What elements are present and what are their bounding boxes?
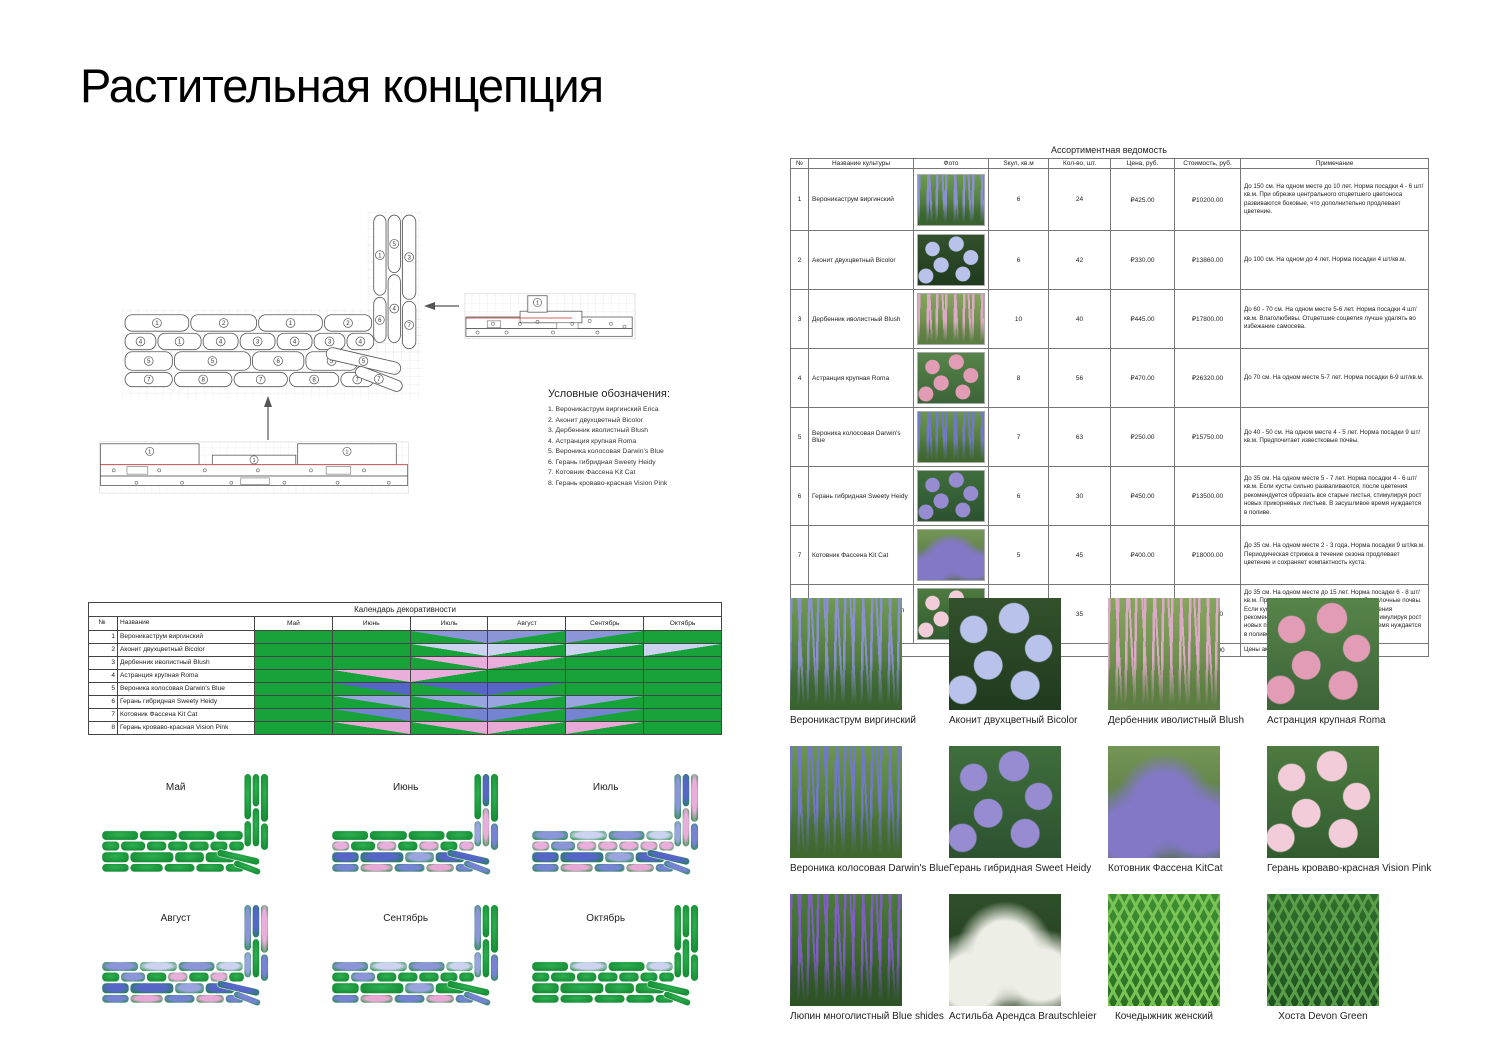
calendar-cell (487, 644, 565, 656)
assortment-cell-name: Котовник Фассена Kit Cat (809, 526, 914, 585)
svg-text:2: 2 (222, 320, 226, 327)
assortment-row: 1Вероникаструм виргинский624₽425.00₽1020… (791, 169, 1429, 231)
calendar-cell (410, 722, 488, 734)
calendar-row: 1Вероникаструм виргинский (89, 631, 721, 644)
svg-text:3: 3 (407, 254, 411, 261)
gallery-item: Герань кроваво-красная Vision Pink (1267, 746, 1379, 874)
legend-item: 1. Вероникаструм виргинский Erica (548, 405, 723, 416)
svg-text:5: 5 (393, 241, 397, 248)
arrow-up-icon (262, 396, 274, 440)
calendar-row-number: 4 (89, 670, 117, 682)
svg-text:1: 1 (289, 320, 293, 327)
calendar-cell (487, 709, 565, 721)
svg-text:4: 4 (393, 306, 397, 313)
assortment-cell-price: ₽400.00 (1111, 526, 1175, 585)
legend-item: 4. Астранция крупная Roma (548, 437, 723, 448)
calendar-cell (565, 670, 643, 682)
svg-text:1: 1 (345, 449, 348, 455)
assortment-section: Ассортиментная ведомость №Название культ… (790, 145, 1428, 657)
assortment-row: 3Дербенник иволистный Blush1040₽445.00₽1… (791, 290, 1429, 349)
calendar-cell (487, 670, 565, 682)
assortment-cell-num: 4 (791, 349, 809, 408)
assortment-column-header: Название культуры (809, 159, 914, 169)
legend-item: 6. Герань гибридная Sweety Heidy (548, 458, 723, 469)
calendar-cell (643, 709, 721, 721)
assortment-column-header: № (791, 159, 809, 169)
calendar-column-header: № (89, 617, 117, 630)
legend-item: 5. Вероника колосовая Darwin's Blue (548, 447, 723, 458)
svg-text:1: 1 (536, 301, 539, 307)
assortment-cell-cost: ₽10200.00 (1175, 169, 1241, 231)
assortment-cell-num: 6 (791, 467, 809, 526)
photo-caption: Котовник Фассена KitCat (1108, 863, 1220, 874)
gallery-item: Кочедыжник женский (1108, 894, 1220, 1022)
assortment-cell-note: До 150 см. На одном месте до 10 лет. Нор… (1241, 169, 1429, 231)
photo-caption: Астильба Арендса Brautschleier (949, 1011, 1061, 1022)
assortment-cell-num: 7 (791, 526, 809, 585)
assortment-cell-photo (914, 467, 989, 526)
plant-photo (790, 746, 902, 858)
calendar-column-header: Июнь (332, 617, 410, 630)
assortment-cell-cost: ₽18000.00 (1175, 526, 1241, 585)
svg-text:8: 8 (201, 377, 205, 384)
calendar-cell (487, 657, 565, 669)
calendar-cell (487, 631, 565, 643)
plant-photo (949, 894, 1061, 1006)
planting-plan-drawing: 1212414343455657878715364757 (122, 212, 422, 399)
calendar-column-header: Октябрь (643, 617, 721, 630)
assortment-cell-area: 6 (989, 169, 1049, 231)
svg-text:5: 5 (147, 358, 151, 365)
calendar-row: 2Аконит двухцветный Bicolor (89, 644, 721, 657)
plant-photo (949, 598, 1061, 710)
svg-text:6: 6 (276, 358, 280, 365)
plant-photo (1108, 746, 1220, 858)
svg-text:7: 7 (377, 376, 381, 383)
svg-text:7: 7 (259, 377, 263, 384)
calendar-cell (332, 631, 410, 643)
assortment-header-row: №Название культурыФотоSкул, кв.мКол-во, … (791, 159, 1429, 169)
svg-text:1: 1 (148, 449, 151, 455)
svg-text:1: 1 (178, 339, 182, 346)
calendar-row-name: Дербенник иволистный Blush (117, 657, 254, 669)
calendar-row: 3Дербенник иволистный Blush (89, 657, 721, 670)
calendar-cell (332, 670, 410, 682)
gallery-item: Люпин многолистный Blue shides (790, 894, 902, 1022)
svg-text:1: 1 (378, 252, 382, 259)
calendar-column-header: Название (117, 617, 254, 630)
calendar-column-header: Сентябрь (565, 617, 643, 630)
assortment-cell-name: Аконит двухцветный Bicolor (809, 231, 914, 290)
month-planting-scheme (330, 772, 502, 879)
calendar-cell (254, 683, 332, 695)
calendar-cell (254, 644, 332, 656)
gallery-item: Хоста Devon Green (1267, 894, 1379, 1022)
calendar-row-number: 5 (89, 683, 117, 695)
calendar-cell (565, 683, 643, 695)
assortment-row: 2Аконит двухцветный Bicolor642₽330.00₽13… (791, 231, 1429, 290)
calendar-row: 4Астранция крупная Roma (89, 670, 721, 683)
assortment-row: 5Вероника колосовая Darwin's Blue763₽250… (791, 408, 1429, 467)
gallery-item: Вероникаструм виргинский (790, 598, 902, 726)
photo-caption: Люпин многолистный Blue shides (790, 1011, 902, 1022)
calendar-cell (565, 657, 643, 669)
calendar-row-name: Герань гибридная Sweety Heidy (117, 696, 254, 708)
plant-photo (1108, 598, 1220, 710)
calendar-row-number: 7 (89, 709, 117, 721)
assortment-cell-photo (914, 408, 989, 467)
decorative-calendar: Календарь декоративности №НазваниеМайИюн… (88, 602, 722, 735)
assortment-cell-qty: 45 (1049, 526, 1111, 585)
calendar-cell (410, 670, 488, 682)
plant-photo (1108, 894, 1220, 1006)
assortment-column-header: Кол-во, шт. (1049, 159, 1111, 169)
assortment-cell-qty: 42 (1049, 231, 1111, 290)
assortment-cell-area: 6 (989, 231, 1049, 290)
assortment-cell-photo (914, 231, 989, 290)
assortment-cell-name: Дербенник иволистный Blush (809, 290, 914, 349)
month-diagram-1: Май (100, 762, 272, 884)
gallery-item: Вероника колосовая Darwin's Blue (790, 746, 902, 874)
photo-caption: Герань гибридная Sweet Heidy (949, 863, 1061, 874)
assortment-cell-num: 2 (791, 231, 809, 290)
svg-text:7: 7 (407, 322, 411, 329)
calendar-cell (254, 657, 332, 669)
calendar-row-name: Герань кроваво-красная Vision Pink (117, 722, 254, 734)
calendar-cell (565, 722, 643, 734)
svg-text:7: 7 (147, 377, 151, 384)
assortment-table: №Название культурыФотоSкул, кв.мКол-во, … (790, 158, 1429, 657)
assortment-cell-cost: ₽26320.00 (1175, 349, 1241, 408)
photo-caption: Хоста Devon Green (1267, 1011, 1379, 1022)
assortment-cell-area: 7 (989, 408, 1049, 467)
calendar-cell (643, 644, 721, 656)
calendar-title: Календарь декоративности (89, 603, 721, 617)
plant-photo (1267, 746, 1379, 858)
svg-text:1: 1 (155, 320, 159, 327)
calendar-header-row: №НазваниеМайИюньИюльАвгустСентябрьОктябр… (89, 617, 721, 631)
calendar-cell (254, 696, 332, 708)
calendar-cell (565, 631, 643, 643)
assortment-cell-qty: 30 (1049, 467, 1111, 526)
calendar-row-number: 1 (89, 631, 117, 643)
assortment-cell-price: ₽250.00 (1111, 408, 1175, 467)
calendar-cell (487, 722, 565, 734)
calendar-cell (332, 683, 410, 695)
calendar-row: 6Герань гибридная Sweety Heidy (89, 696, 721, 709)
svg-text:4: 4 (139, 339, 143, 346)
assortment-cell-cost: ₽13860.00 (1175, 231, 1241, 290)
assortment-cell-photo (914, 169, 989, 231)
calendar-cell (254, 709, 332, 721)
calendar-cell (254, 631, 332, 643)
legend-item: 8. Герань кроваво-красная Vision Pink (548, 479, 723, 490)
assortment-cell-qty: 56 (1049, 349, 1111, 408)
assortment-cell-cost: ₽13500.00 (1175, 467, 1241, 526)
calendar-column-header: Август (487, 617, 565, 630)
svg-text:4: 4 (293, 339, 297, 346)
calendar-cell (410, 696, 488, 708)
assortment-cell-qty: 40 (1049, 290, 1111, 349)
month-diagram-5: Сентябрь (330, 893, 502, 1015)
calendar-row-number: 6 (89, 696, 117, 708)
month-diagram-2: Июнь (330, 762, 502, 884)
calendar-cell (565, 696, 643, 708)
assortment-cell-price: ₽425.00 (1111, 169, 1175, 231)
assortment-row: 7Котовник Фассена Kit Cat545₽400.00₽1800… (791, 526, 1429, 585)
assortment-cell-price: ₽330.00 (1111, 231, 1175, 290)
svg-text:3: 3 (256, 339, 260, 346)
assortment-cell-note: До 100 см. На одном до 4 лет. Норма поса… (1241, 231, 1429, 290)
calendar-cell (643, 657, 721, 669)
assortment-cell-photo (914, 526, 989, 585)
legend: Условные обозначения: 1. Вероникаструм в… (548, 388, 723, 489)
svg-text:2: 2 (346, 320, 350, 327)
calendar-row-number: 3 (89, 657, 117, 669)
svg-text:6: 6 (378, 317, 382, 324)
plant-photo (1267, 894, 1379, 1006)
photo-caption: Кочедыжник женский (1108, 1011, 1220, 1022)
plant-photo (949, 746, 1061, 858)
slide: { "title": "Растительная концепция", "pl… (0, 0, 1500, 1061)
legend-item: 2. Аконит двухцветный Bicolor (548, 416, 723, 427)
calendar-row: 7Котовник Фассена Kit Cat (89, 709, 721, 722)
calendar-cell (332, 644, 410, 656)
assortment-cell-note: До 35 см. На одном месте 2 - 3 года. Нор… (1241, 526, 1429, 585)
elevation-front-view: 111 (90, 440, 420, 495)
month-planting-scheme (530, 903, 702, 1010)
calendar-cell (410, 709, 488, 721)
assortment-cell-num: 5 (791, 408, 809, 467)
photo-caption: Герань кроваво-красная Vision Pink (1267, 863, 1379, 874)
month-planting-scheme (100, 903, 272, 1010)
assortment-cell-cost: ₽17800.00 (1175, 290, 1241, 349)
calendar-cell (410, 683, 488, 695)
gallery-item: Астильба Арендса Brautschleier (949, 894, 1061, 1022)
svg-text:5: 5 (211, 358, 215, 365)
calendar-cell (254, 670, 332, 682)
assortment-cell-note: До 60 - 70 см. На одном месте 5-6 лет. Н… (1241, 290, 1429, 349)
calendar-cell (332, 722, 410, 734)
calendar-row-name: Котовник Фассена Kit Cat (117, 709, 254, 721)
gallery-item: Аконит двухцветный Bicolor (949, 598, 1061, 726)
plant-photo (917, 174, 985, 226)
month-diagram-6: Октябрь (530, 893, 702, 1015)
assortment-column-header: Стоимость, руб. (1175, 159, 1241, 169)
assortment-row: 4Астранция крупная Roma856₽470.00₽26320.… (791, 349, 1429, 408)
assortment-title: Ассортиментная ведомость (790, 145, 1428, 155)
calendar-cell (254, 722, 332, 734)
assortment-column-header: Фото (914, 159, 989, 169)
legend-item: 7. Котовник Фассена Kit Cat (548, 468, 723, 479)
svg-text:5: 5 (362, 358, 366, 365)
calendar-row: 5Вероника колосовая Darwin's Blue (89, 683, 721, 696)
svg-text:8: 8 (312, 377, 316, 384)
assortment-cell-price: ₽445.00 (1111, 290, 1175, 349)
gallery-item: Котовник Фассена KitCat (1108, 746, 1220, 874)
assortment-cell-note: До 40 - 50 см. На одном месте 4 - 5 лет.… (1241, 408, 1429, 467)
svg-text:1: 1 (252, 458, 255, 464)
assortment-column-header: Sкул, кв.м (989, 159, 1049, 169)
assortment-cell-area: 6 (989, 467, 1049, 526)
assortment-cell-num: 3 (791, 290, 809, 349)
assortment-cell-photo (914, 290, 989, 349)
calendar-cell (565, 709, 643, 721)
photo-caption: Вероника колосовая Darwin's Blue (790, 863, 902, 874)
calendar-cell (487, 696, 565, 708)
calendar-row-name: Астранция крупная Roma (117, 670, 254, 682)
assortment-cell-name: Астранция крупная Roma (809, 349, 914, 408)
photo-caption: Аконит двухцветный Bicolor (949, 715, 1061, 726)
calendar-cell (487, 683, 565, 695)
calendar-cell (643, 631, 721, 643)
calendar-cell (332, 709, 410, 721)
month-diagram-3: Июль (530, 762, 702, 884)
plant-photo (917, 411, 985, 463)
plant-photo (917, 293, 985, 345)
calendar-cell (410, 631, 488, 643)
assortment-column-header: Примечание (1241, 159, 1429, 169)
assortment-cell-photo (914, 349, 989, 408)
calendar-cell (332, 657, 410, 669)
assortment-cell-name: Герань гибридная Sweety Heidy (809, 467, 914, 526)
calendar-row-name: Аконит двухцветный Bicolor (117, 644, 254, 656)
plant-photo (1267, 598, 1379, 710)
assortment-cell-area: 10 (989, 290, 1049, 349)
plant-photo (790, 894, 902, 1006)
assortment-cell-note: До 70 см. На одном месте 5-7 лет. Норма … (1241, 349, 1429, 408)
calendar-cell (410, 644, 488, 656)
calendar-cell (643, 722, 721, 734)
assortment-cell-qty: 24 (1049, 169, 1111, 231)
calendar-cell (643, 696, 721, 708)
month-planting-scheme (530, 772, 702, 879)
plant-photo (917, 352, 985, 404)
calendar-column-header: Май (254, 617, 332, 630)
calendar-row-name: Вероника колосовая Darwin's Blue (117, 683, 254, 695)
assortment-cell-note: До 35 см. На одном месте 5 - 7 лет. Норм… (1241, 467, 1429, 526)
calendar-row-name: Вероникаструм виргинский (117, 631, 254, 643)
legend-title: Условные обозначения: (548, 388, 723, 400)
svg-text:4: 4 (359, 339, 363, 346)
page-title: Растительная концепция (80, 58, 603, 113)
calendar-column-header: Июль (410, 617, 488, 630)
gallery-item: Герань гибридная Sweet Heidy (949, 746, 1061, 874)
assortment-cell-area: 5 (989, 526, 1049, 585)
month-diagram-4: Август (100, 893, 272, 1015)
legend-items: 1. Вероникаструм виргинский Erica2. Акон… (548, 405, 723, 489)
plant-photo (917, 470, 985, 522)
assortment-row: 6Герань гибридная Sweety Heidy630₽450.00… (791, 467, 1429, 526)
assortment-cell-name: Вероника колосовая Darwin's Blue (809, 408, 914, 467)
arrow-left-icon (424, 300, 460, 312)
gallery-item: Астранция крупная Roma (1267, 598, 1379, 726)
photo-caption: Вероникаструм виргинский (790, 715, 902, 726)
gallery-item: Дербенник иволистный Blush (1108, 598, 1220, 726)
assortment-column-header: Цена, руб. (1111, 159, 1175, 169)
calendar-cell (332, 696, 410, 708)
calendar-cell (643, 670, 721, 682)
assortment-cell-qty: 63 (1049, 408, 1111, 467)
photo-caption: Астранция крупная Roma (1267, 715, 1379, 726)
assortment-cell-name: Вероникаструм виргинский (809, 169, 914, 231)
calendar-row-number: 8 (89, 722, 117, 734)
plant-photo (917, 529, 985, 581)
calendar-row-number: 2 (89, 644, 117, 656)
photo-caption: Дербенник иволистный Blush (1108, 715, 1220, 726)
plant-photo (790, 598, 902, 710)
svg-text:3: 3 (328, 339, 332, 346)
assortment-cell-cost: ₽15750.00 (1175, 408, 1241, 467)
elevation-side-view: 1 (462, 288, 640, 346)
svg-text:4: 4 (219, 339, 223, 346)
assortment-cell-area: 8 (989, 349, 1049, 408)
plant-gallery: Вероникаструм виргинскийАконит двухцветн… (790, 598, 1379, 1022)
assortment-cell-num: 1 (791, 169, 809, 231)
calendar-cell (643, 683, 721, 695)
calendar-cell (565, 644, 643, 656)
month-planting-scheme (100, 772, 272, 879)
calendar-row: 8Герань кроваво-красная Vision Pink (89, 722, 721, 734)
assortment-cell-price: ₽450.00 (1111, 467, 1175, 526)
month-planting-scheme (330, 903, 502, 1010)
plant-photo (917, 234, 985, 286)
legend-item: 3. Дербенник иволистный Blush (548, 426, 723, 437)
assortment-cell-price: ₽470.00 (1111, 349, 1175, 408)
calendar-cell (410, 657, 488, 669)
